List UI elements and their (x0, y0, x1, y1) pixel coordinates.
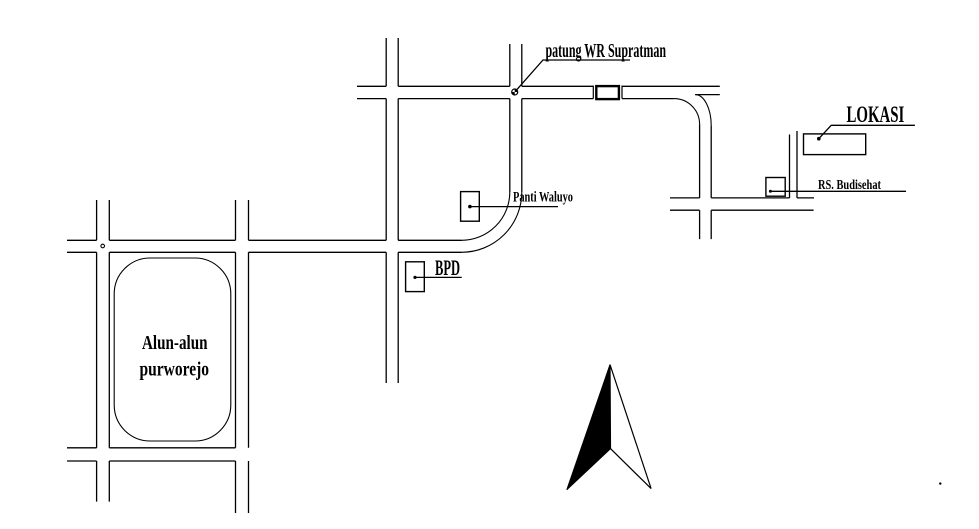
svg-text:BPD: BPD (435, 255, 460, 280)
svg-text:patung WR Supratman: patung WR Supratman (546, 40, 667, 62)
svg-text:LOKASI: LOKASI (847, 102, 905, 127)
svg-text:Alun-alun: Alun-alun (142, 332, 208, 354)
svg-text:RS. Budisehat: RS. Budisehat (818, 178, 881, 193)
svg-text:purworejo: purworejo (140, 359, 210, 381)
svg-text:Panti Waluyo: Panti Waluyo (513, 190, 573, 206)
